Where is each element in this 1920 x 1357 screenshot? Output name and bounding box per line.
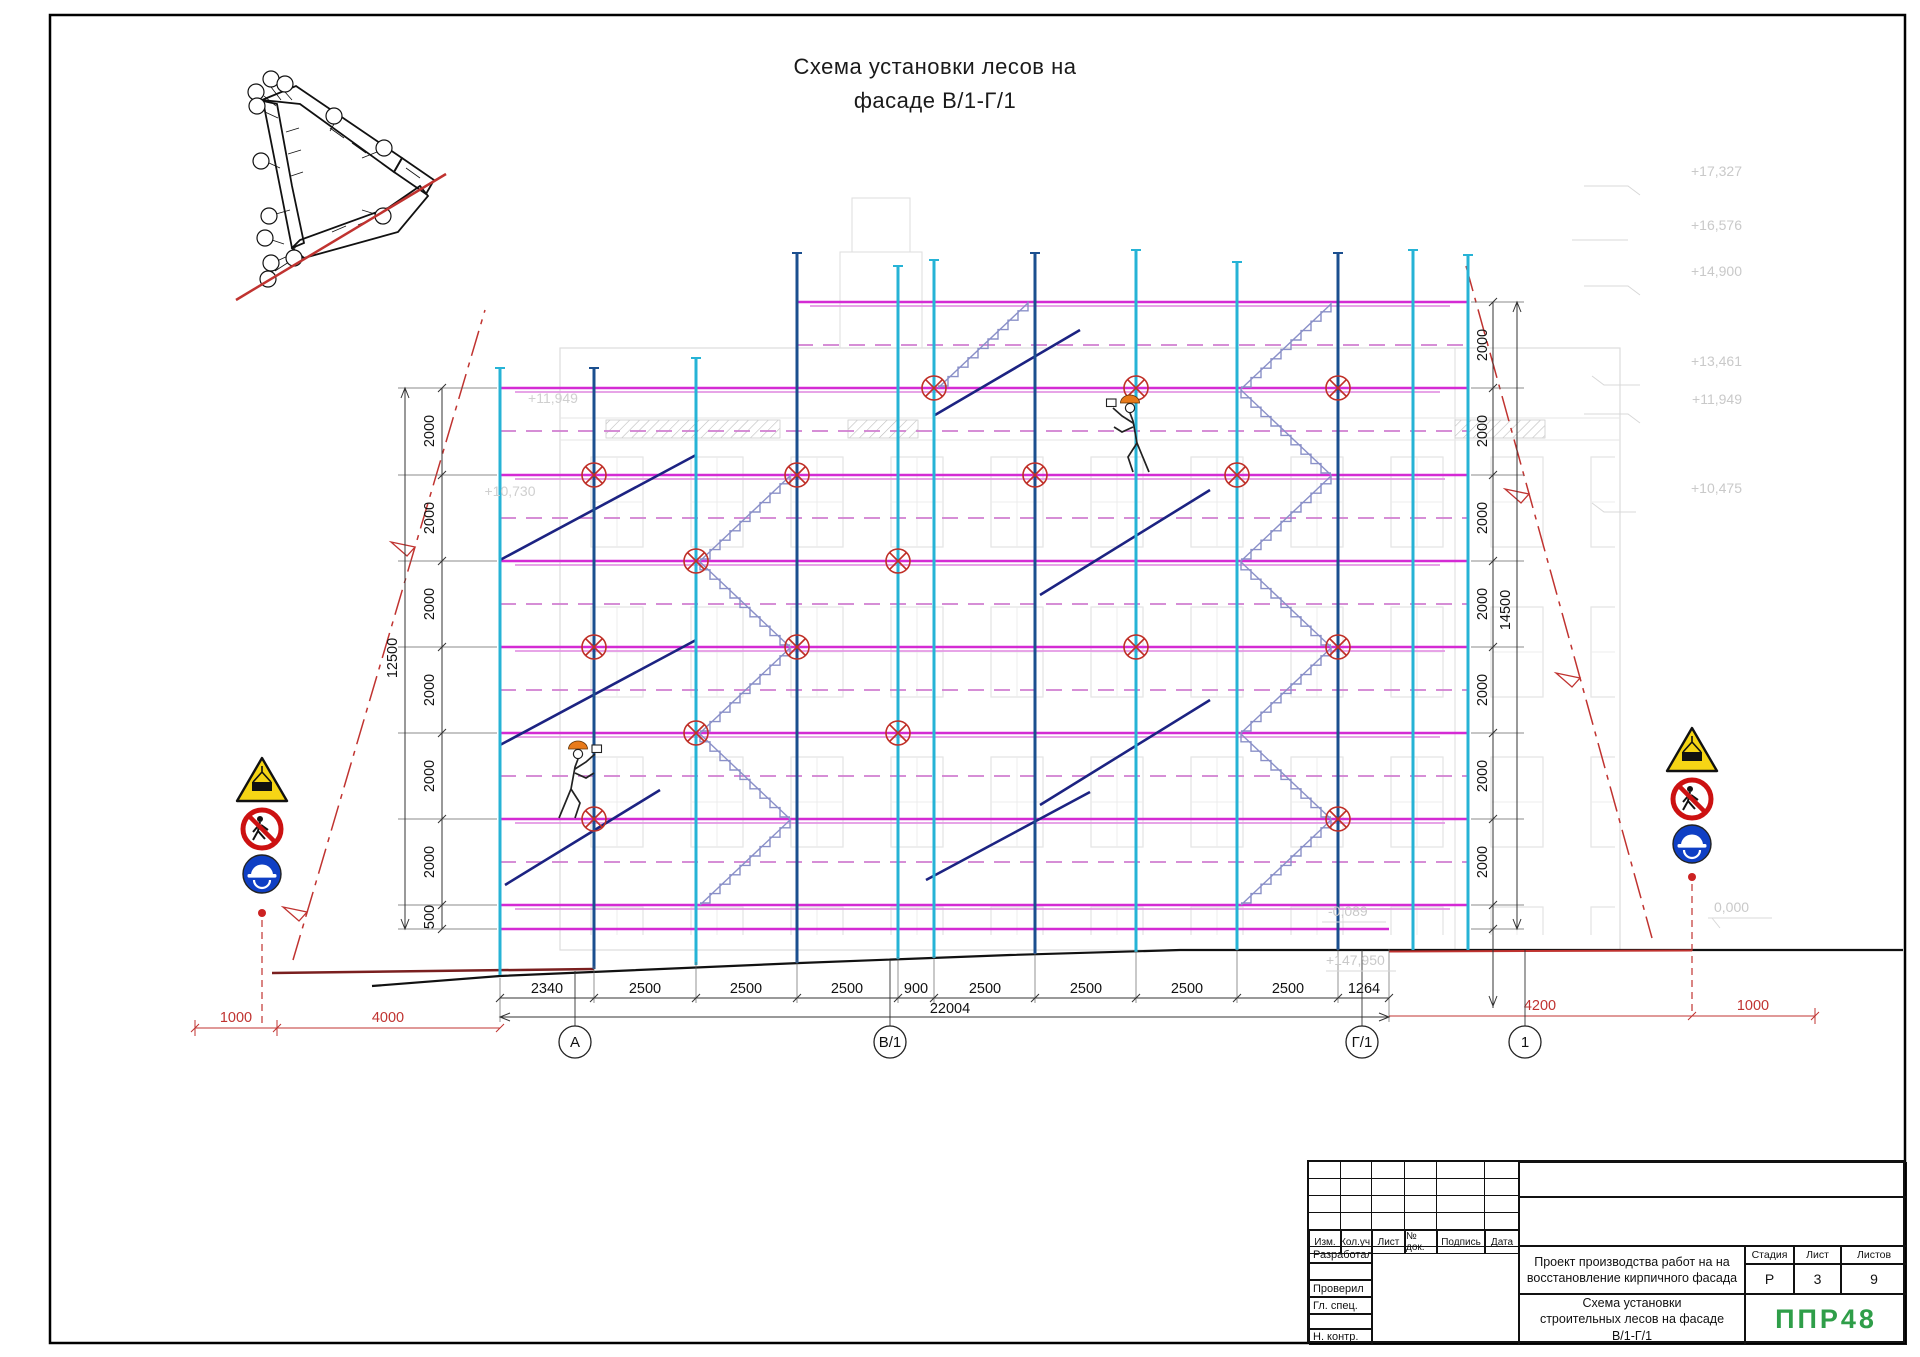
elevation-mark: +11,949 — [528, 390, 578, 406]
elevation-mark: +10,730 — [485, 483, 536, 499]
project-name: Проект производства работ на на восстано… — [1519, 1246, 1745, 1294]
drawing-title-line1: Схема установки лесов на — [635, 50, 1235, 84]
sheet-header: Лист — [1794, 1246, 1841, 1264]
dim-label: 2000 — [422, 760, 438, 792]
elevation-mark: +11,949 — [1692, 391, 1742, 407]
dim-total-label: 22004 — [930, 1001, 970, 1017]
dim-label: 1264 — [1348, 981, 1380, 997]
sheet-name: Схема установки строительных лесов на фа… — [1519, 1294, 1745, 1345]
site-plan-axis-bubbles — [248, 71, 392, 287]
axis-label: В/1 — [879, 1034, 902, 1051]
cornice-hatch — [606, 420, 780, 438]
elevation-mark: +16,576 — [1691, 217, 1742, 233]
dim-label: 2340 — [531, 981, 563, 997]
elevation-mark: -0,089 — [1328, 903, 1368, 919]
red-dim-label: 4000 — [372, 1010, 404, 1026]
sign-post-marker — [258, 909, 266, 917]
revision-table — [1309, 1162, 1519, 1230]
dim-label: 2500 — [1272, 981, 1304, 997]
staff-razrabotal: Разработал — [1309, 1246, 1372, 1263]
cornice-hatch — [848, 420, 918, 438]
dim-label: 2000 — [1475, 760, 1491, 792]
dim-label: 2000 — [1475, 588, 1491, 620]
dim-label: 500 — [422, 905, 438, 929]
red-dim-label: 4200 — [1524, 998, 1556, 1014]
dim-label: 2500 — [629, 981, 661, 997]
staff-glspec: Гл. спец. — [1309, 1297, 1372, 1314]
revision-table-header: Изм. Кол.уч. Лист № док. Подпись Дата — [1309, 1230, 1519, 1246]
dim-label: 2500 — [969, 981, 1001, 997]
elevation-mark: +13,461 — [1691, 353, 1742, 369]
dim-label: 2500 — [730, 981, 762, 997]
sheets-value: 9 — [1841, 1264, 1907, 1294]
red-dim-label: 1000 — [1737, 998, 1769, 1014]
sheet-value: 3 — [1794, 1264, 1841, 1294]
drawing-sheet: 2000 2000 2000 2000 2000 2000 500 12500 … — [0, 0, 1920, 1357]
elevation-mark: 0,000 — [1714, 899, 1749, 915]
dim-label: 2000 — [1475, 846, 1491, 878]
axis-label: 1 — [1521, 1034, 1529, 1051]
dim-label: 2000 — [1475, 415, 1491, 447]
elevation-mark: +14,900 — [1691, 263, 1742, 279]
axis-label: А — [570, 1034, 580, 1051]
drawing-canvas: 2000 2000 2000 2000 2000 2000 500 12500 … — [0, 0, 1920, 1357]
stage-value: Р — [1745, 1264, 1794, 1294]
elevation-mark: +10,475 — [1691, 480, 1742, 496]
signatures-area — [1372, 1246, 1519, 1345]
dim-label: 2500 — [1070, 981, 1102, 997]
title-block: Изм. Кол.уч. Лист № док. Подпись Дата Ра… — [1307, 1160, 1905, 1343]
sheets-header: Листов — [1841, 1246, 1907, 1264]
dim-label: 2000 — [1475, 329, 1491, 361]
dim-label: 2000 — [422, 502, 438, 534]
elevation-mark: +147,950 — [1326, 952, 1385, 968]
sign-post-marker — [1688, 873, 1696, 881]
dim-label: 2000 — [422, 674, 438, 706]
staff-proveril: Проверил — [1309, 1280, 1372, 1297]
stage-header: Стадия — [1745, 1246, 1794, 1264]
dim-label: 2500 — [1171, 981, 1203, 997]
dim-total-label: 12500 — [385, 638, 401, 678]
site-plan — [236, 71, 446, 300]
dim-label: 2000 — [1475, 674, 1491, 706]
dim-total-label: 14500 — [1498, 590, 1514, 630]
red-dim-label: 1000 — [220, 1010, 252, 1026]
staff-nkontr: Н. контр. — [1309, 1329, 1372, 1345]
dim-label: 2000 — [422, 415, 438, 447]
dim-label: 2000 — [422, 846, 438, 878]
company-logo: ППР48 — [1745, 1294, 1907, 1345]
drawing-title-line2: фасаде В/1-Г/1 — [635, 84, 1235, 118]
building-facade-outline — [560, 198, 1620, 950]
dim-label: 900 — [904, 981, 928, 997]
drawing-title: Схема установки лесов на фасаде В/1-Г/1 — [635, 50, 1235, 118]
elevation-mark: +17,327 — [1691, 163, 1742, 179]
dim-label: 2000 — [1475, 502, 1491, 534]
axis-label: Г/1 — [1352, 1034, 1373, 1051]
dim-label: 2500 — [831, 981, 863, 997]
dim-label: 2000 — [422, 588, 438, 620]
